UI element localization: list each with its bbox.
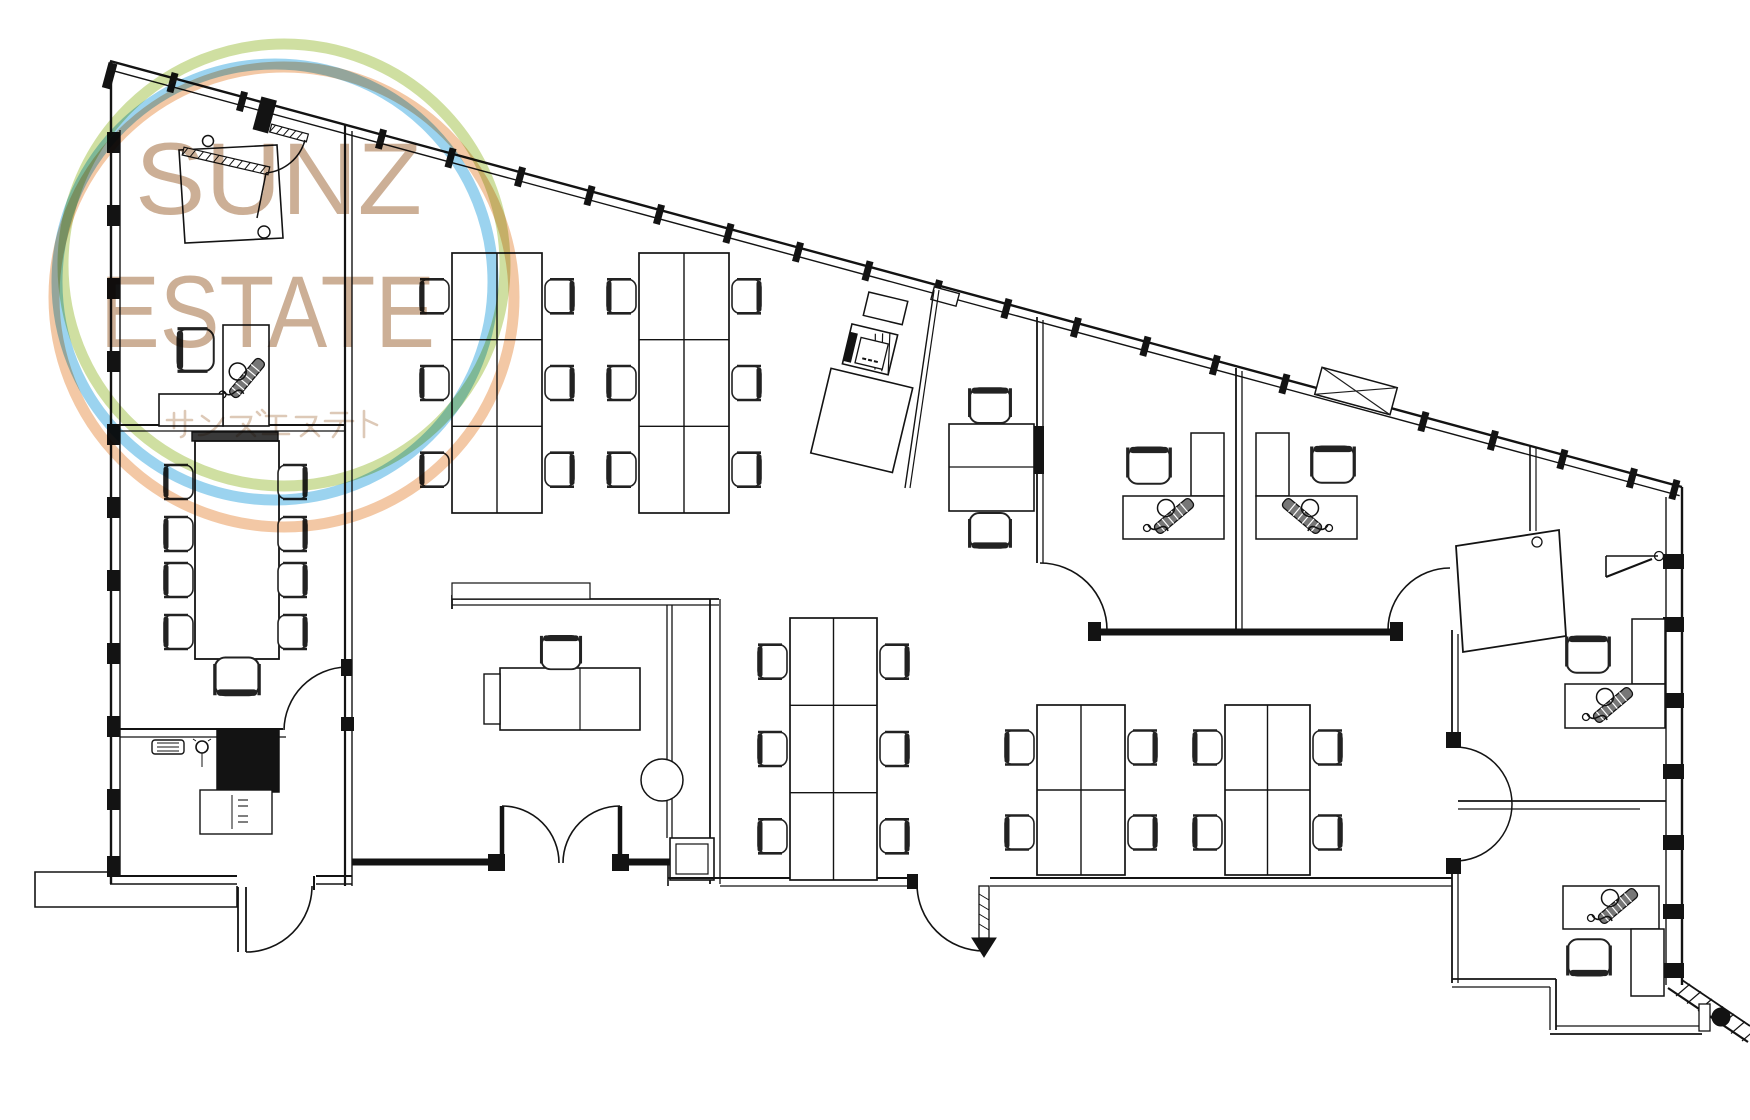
svg-text:ESTATE: ESTATE bbox=[100, 255, 435, 369]
svg-text:SUNZ: SUNZ bbox=[135, 122, 422, 236]
